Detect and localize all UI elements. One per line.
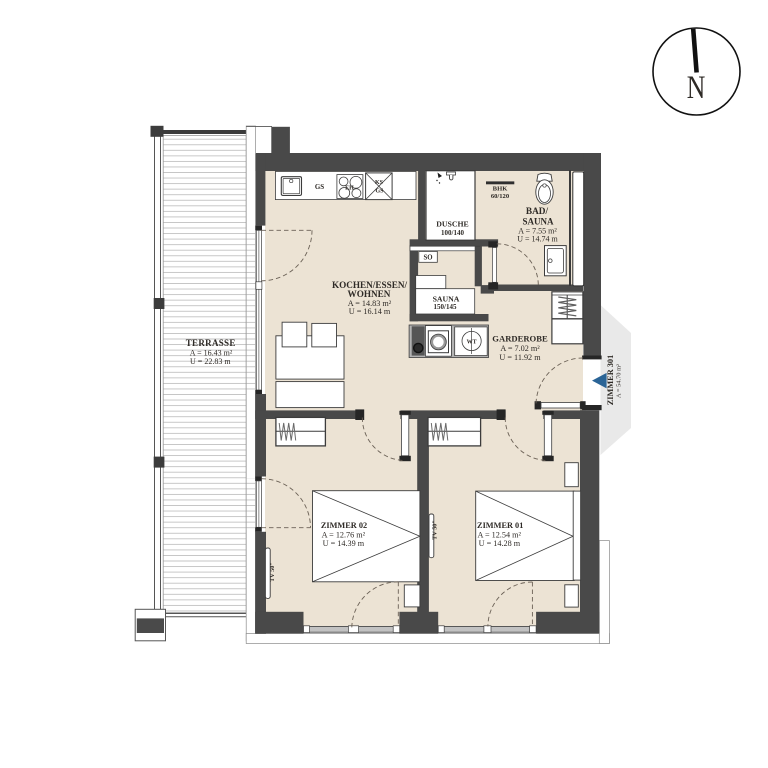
svg-text:EH: EH — [345, 185, 354, 191]
svg-text:BAD/: BAD/ — [526, 207, 549, 217]
svg-text:A = 54.70 m²: A = 54.70 m² — [616, 364, 623, 398]
svg-text:U = 14.74 m: U = 14.74 m — [517, 234, 558, 243]
svg-text:WOHNEN: WOHNEN — [348, 289, 391, 299]
svg-text:ZIMMER 01: ZIMMER 01 — [477, 521, 523, 530]
svg-text:60/120: 60/120 — [491, 193, 510, 200]
svg-text:TV 50": TV 50" — [432, 520, 439, 540]
svg-text:TERRASSE: TERRASSE — [186, 338, 236, 348]
svg-text:DUSCHE: DUSCHE — [436, 219, 469, 228]
svg-text:N: N — [687, 70, 706, 106]
svg-text:WT: WT — [467, 340, 477, 346]
svg-text:BHK: BHK — [493, 185, 509, 192]
svg-text:U = 16.14 m: U = 16.14 m — [349, 307, 391, 316]
svg-text:U = 14.39 m: U = 14.39 m — [323, 539, 365, 548]
svg-text:SO: SO — [423, 255, 432, 262]
svg-text:A = 7.02 m²: A = 7.02 m² — [500, 344, 540, 353]
svg-text:SAUNA: SAUNA — [522, 217, 554, 227]
svg-text:A = 16.43 m²: A = 16.43 m² — [190, 348, 233, 357]
svg-text:ZIMMER 02: ZIMMER 02 — [321, 521, 367, 530]
svg-text:ZIMMER 301: ZIMMER 301 — [606, 355, 615, 405]
svg-text:TV 50": TV 50" — [269, 562, 276, 582]
svg-text:GS: GS — [375, 188, 384, 194]
svg-text:GS: GS — [315, 183, 324, 191]
svg-text:U = 22.83 m: U = 22.83 m — [190, 357, 231, 366]
svg-text:U = 14.28 m: U = 14.28 m — [479, 539, 521, 548]
svg-text:100/140: 100/140 — [441, 229, 464, 237]
svg-text:SAUNA: SAUNA — [433, 294, 460, 303]
svg-text:KS: KS — [375, 180, 384, 186]
svg-text:GARDEROBE: GARDEROBE — [492, 334, 548, 344]
svg-text:U = 11.92 m: U = 11.92 m — [499, 353, 541, 362]
svg-text:150/145: 150/145 — [434, 303, 457, 311]
